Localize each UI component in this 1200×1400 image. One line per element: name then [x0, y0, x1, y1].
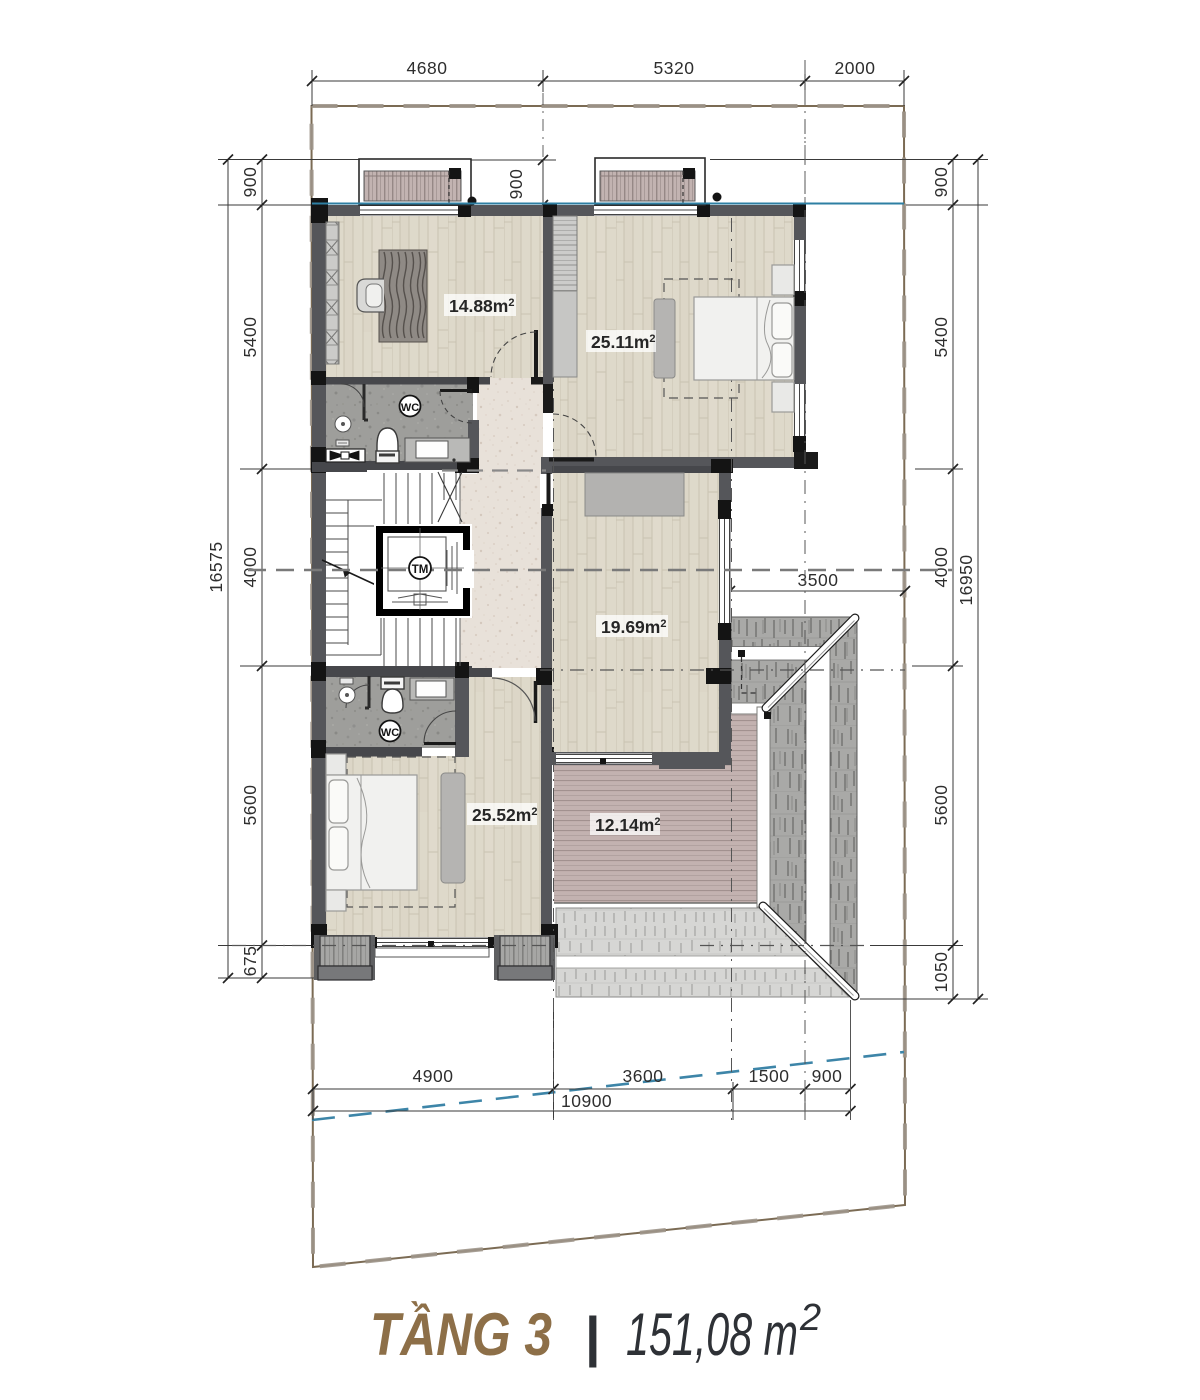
svg-text:3500: 3500 [798, 570, 839, 590]
svg-text:675: 675 [240, 946, 260, 977]
svg-text:16950: 16950 [956, 554, 976, 605]
svg-text:5320: 5320 [654, 58, 695, 78]
svg-text:19.69m2: 19.69m2 [601, 617, 666, 637]
svg-text:4000: 4000 [931, 547, 951, 588]
svg-text:5600: 5600 [240, 785, 260, 826]
svg-text:2: 2 [799, 1297, 821, 1339]
svg-text:2000: 2000 [835, 58, 876, 78]
svg-text:1500: 1500 [749, 1066, 790, 1086]
svg-text:10900: 10900 [561, 1091, 612, 1111]
svg-text:TM: TM [412, 564, 429, 576]
svg-text:3600: 3600 [623, 1066, 664, 1086]
svg-text:25.52m2: 25.52m2 [472, 805, 537, 825]
svg-text:5400: 5400 [240, 317, 260, 358]
svg-text:900: 900 [931, 167, 951, 198]
svg-text:14.88m2: 14.88m2 [449, 296, 514, 316]
svg-text:900: 900 [812, 1066, 843, 1086]
svg-text:1050: 1050 [931, 952, 951, 993]
svg-text:WC: WC [381, 727, 399, 739]
svg-text:900: 900 [240, 167, 260, 198]
svg-text:WC: WC [401, 402, 419, 414]
svg-text:4000: 4000 [240, 547, 260, 588]
svg-text:16575: 16575 [206, 541, 226, 592]
svg-text:|: | [584, 1305, 600, 1368]
svg-text:5400: 5400 [931, 317, 951, 358]
svg-text:900: 900 [506, 169, 526, 200]
svg-text:4680: 4680 [407, 58, 448, 78]
svg-text:12.14m2: 12.14m2 [595, 815, 660, 835]
svg-text:151,08 m: 151,08 m [626, 1301, 798, 1368]
svg-text:4900: 4900 [413, 1066, 454, 1086]
svg-text:TẦNG 3: TẦNG 3 [370, 1301, 552, 1368]
svg-text:25.11m2: 25.11m2 [591, 332, 656, 352]
svg-text:5600: 5600 [931, 785, 951, 826]
